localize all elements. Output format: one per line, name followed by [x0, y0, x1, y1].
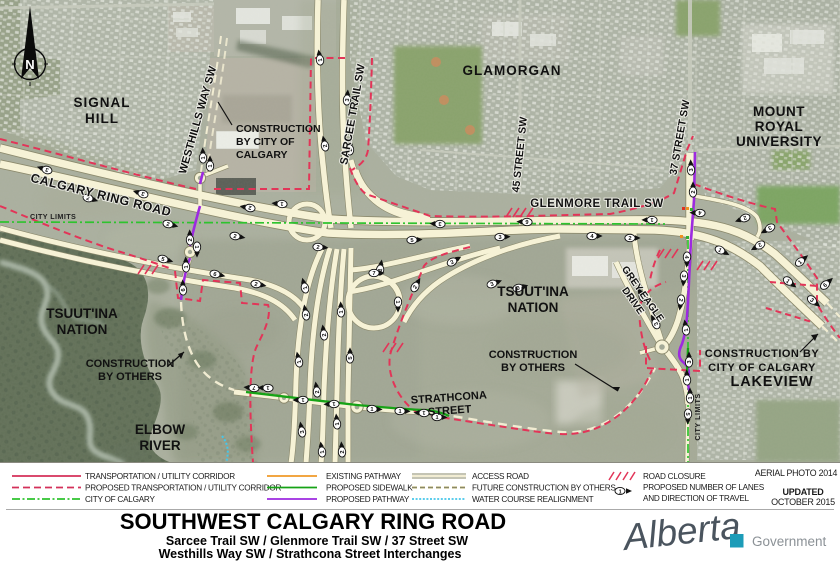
svg-text:UPDATED: UPDATED	[782, 487, 824, 497]
svg-text:Government: Government	[752, 534, 827, 549]
svg-text:2: 2	[316, 245, 320, 251]
svg-text:CONSTRUCTION BY: CONSTRUCTION BY	[705, 348, 820, 360]
svg-text:CALGARY: CALGARY	[236, 149, 288, 161]
svg-text:ROYAL: ROYAL	[755, 119, 804, 134]
svg-text:WATER COURSE REALIGNMENT: WATER COURSE REALIGNMENT	[472, 495, 594, 504]
svg-text:1: 1	[619, 489, 622, 495]
svg-text:2: 2	[340, 450, 346, 454]
svg-text:PROPOSED SIDEWALK: PROPOSED SIDEWALK	[326, 484, 413, 493]
svg-text:GLENMORE TRAIL SW: GLENMORE TRAIL SW	[530, 198, 664, 210]
svg-text:ROAD CLOSURE: ROAD CLOSURE	[643, 472, 706, 481]
svg-text:TRANSPORTATION / UTILITY CORRI: TRANSPORTATION / UTILITY CORRIDOR	[85, 472, 235, 481]
svg-text:2: 2	[628, 236, 631, 242]
svg-text:2: 2	[188, 238, 194, 241]
svg-text:BY CITY OF: BY CITY OF	[236, 136, 295, 148]
svg-text:CONSTRUCTION: CONSTRUCTION	[236, 123, 321, 135]
svg-text:2: 2	[691, 190, 697, 193]
svg-text:7: 7	[252, 384, 256, 390]
svg-text:RIVER: RIVER	[139, 438, 181, 453]
svg-text:NATION: NATION	[57, 322, 108, 337]
svg-text:MOUNT: MOUNT	[753, 104, 805, 119]
svg-text:CONSTRUCTION: CONSTRUCTION	[86, 358, 175, 370]
svg-text:CITY LIMITS: CITY LIMITS	[693, 393, 702, 440]
svg-text:Westhills Way SW / Strathcona: Westhills Way SW / Strathcona Street Int…	[159, 547, 462, 561]
svg-text:OCTOBER 2015: OCTOBER 2015	[771, 497, 835, 507]
svg-text:Sarcee Trail SW / Glenmore Tra: Sarcee Trail SW / Glenmore Trail SW / 37…	[166, 534, 468, 548]
svg-text:LAKEVIEW: LAKEVIEW	[731, 374, 814, 390]
svg-text:TSUUT'INA: TSUUT'INA	[46, 306, 118, 321]
svg-text:NATION: NATION	[508, 300, 559, 315]
svg-text:UNIVERSITY: UNIVERSITY	[736, 134, 822, 149]
svg-text:SOUTHWEST CALGARY RING ROAD: SOUTHWEST CALGARY RING ROAD	[120, 509, 506, 534]
svg-text:CITY OF CALGARY: CITY OF CALGARY	[85, 495, 155, 504]
svg-text:ELBOW: ELBOW	[135, 422, 186, 437]
svg-text:GLAMORGAN: GLAMORGAN	[463, 63, 562, 78]
svg-text:BY OTHERS: BY OTHERS	[98, 371, 162, 383]
svg-text:AND DIRECTION OF TRAVEL: AND DIRECTION OF TRAVEL	[643, 494, 750, 503]
svg-text:CITY LIMITS: CITY LIMITS	[30, 212, 76, 221]
svg-text:N: N	[25, 57, 34, 72]
svg-text:FUTURE CONSTRUCTION BY OTHERS: FUTURE CONSTRUCTION BY OTHERS	[472, 484, 616, 493]
svg-text:CONSTRUCTION: CONSTRUCTION	[489, 349, 578, 361]
svg-text:PROPOSED NUMBER OF LANES: PROPOSED NUMBER OF LANES	[643, 483, 765, 492]
svg-text:EXISTING PATHWAY: EXISTING PATHWAY	[326, 472, 402, 481]
svg-text:TSUUT'INA: TSUUT'INA	[497, 284, 569, 299]
svg-text:ACCESS ROAD: ACCESS ROAD	[472, 472, 529, 481]
svg-text:PROPOSED TRANSPORTATION / UTIL: PROPOSED TRANSPORTATION / UTILITY CORRID…	[85, 484, 282, 493]
svg-text:AERIAL PHOTO 2014: AERIAL PHOTO 2014	[755, 468, 838, 478]
svg-text:BY OTHERS: BY OTHERS	[501, 362, 565, 374]
svg-text:CITY OF CALGARY: CITY OF CALGARY	[708, 362, 816, 374]
svg-text:7: 7	[372, 271, 375, 277]
svg-text:PROPOSED PATHWAY: PROPOSED PATHWAY	[326, 495, 410, 504]
svg-text:HILL: HILL	[85, 111, 119, 126]
svg-text:SIGNAL: SIGNAL	[73, 95, 130, 110]
